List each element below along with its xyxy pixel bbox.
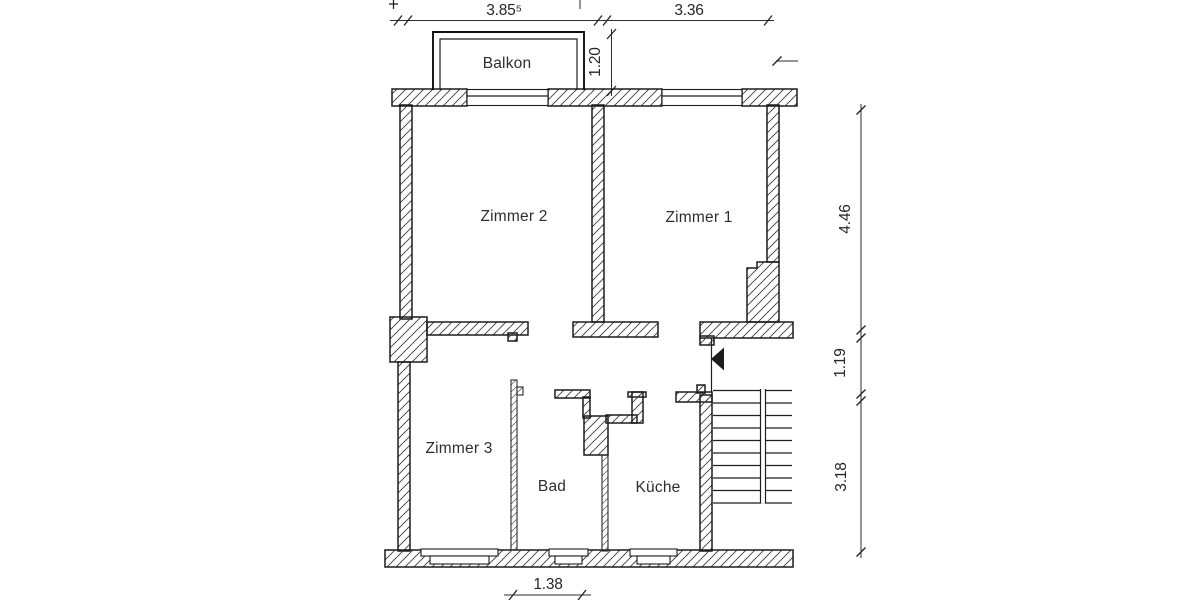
duct-vertical-west: [583, 397, 590, 418]
wall-left-upper: [400, 105, 412, 319]
dim-balcony-depth-label: 1.20: [587, 47, 604, 77]
wall-zimmer3-bad-notch: [517, 387, 523, 395]
floorplan-drawing: 3.85⁵ 3.36 1.20 4.46 1.19 3.18 1.38: [0, 0, 1200, 600]
wall-middle-door-stop: [508, 333, 517, 341]
wall-top-left: [392, 89, 467, 106]
wall-stairwell-step: [697, 385, 705, 393]
wall-bad-kueche-lower: [602, 455, 608, 551]
stairs: [713, 389, 792, 504]
walls: [385, 89, 797, 567]
window-zimmer1: [662, 90, 742, 106]
dim-right-lower-label: 3.18: [833, 462, 850, 491]
wall-right-upper: [767, 105, 779, 262]
room-label-kueche: Küche: [636, 479, 681, 496]
room-label-bad: Bad: [538, 478, 566, 495]
wall-middle-t-segment: [573, 322, 658, 337]
wall-chimney-block: [747, 262, 779, 322]
entrance-door-marker: [711, 348, 724, 371]
wall-top-right: [742, 89, 797, 106]
wall-top-middle: [548, 89, 662, 106]
window-bad: [549, 549, 588, 564]
wall-zimmer3-bad: [511, 380, 517, 550]
dim-right-upper-label: 4.46: [837, 204, 854, 233]
duct-cap-east: [628, 392, 646, 397]
window-zimmer2: [467, 90, 548, 106]
dim-top-right-label: 3.36: [674, 2, 703, 19]
duct-block: [584, 416, 608, 455]
room-labels: Balkon Zimmer 2 Zimmer 1 Zimmer 3 Bad Kü…: [425, 55, 732, 496]
dim-right-middle-label: 1.19: [832, 348, 849, 377]
room-label-balkon: Balkon: [483, 55, 532, 72]
wall-divider-zimmer1-2: [592, 105, 604, 322]
window-kueche: [630, 549, 677, 564]
window-zimmer3: [421, 549, 498, 564]
room-label-zimmer2: Zimmer 2: [480, 208, 547, 225]
room-label-zimmer3: Zimmer 3: [425, 440, 492, 457]
wall-left-lower: [398, 362, 410, 551]
wall-stairwell-left: [700, 395, 712, 551]
wall-left-block: [390, 317, 427, 362]
dim-bottom-label: 1.38: [533, 576, 562, 593]
dim-top-left-label: 3.85⁵: [486, 2, 522, 19]
floorplan-page: 3.85⁵ 3.36 1.20 4.46 1.19 3.18 1.38: [0, 0, 1200, 600]
room-label-zimmer1: Zimmer 1: [665, 209, 732, 226]
